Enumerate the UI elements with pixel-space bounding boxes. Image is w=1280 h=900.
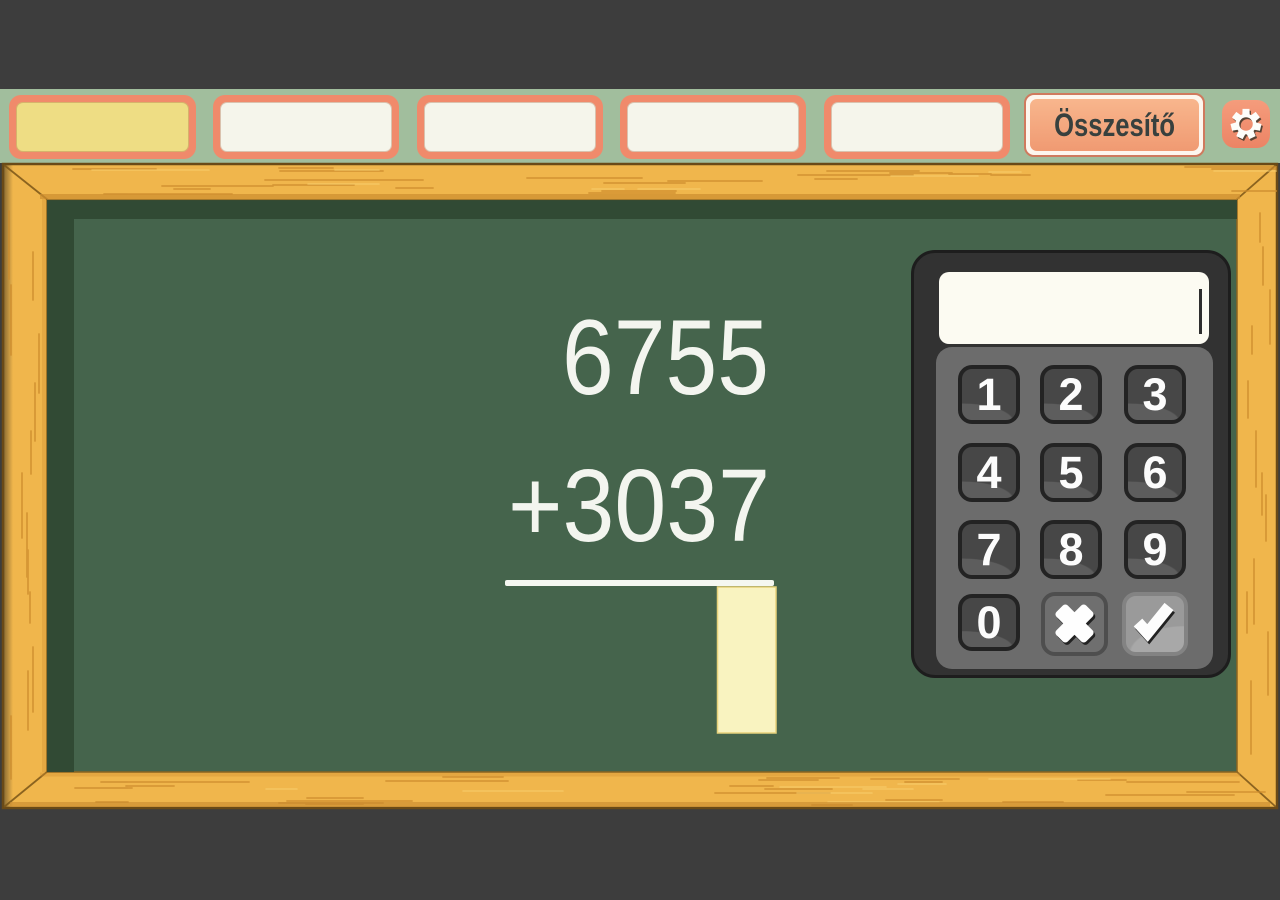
svg-text:6755: 6755	[562, 297, 769, 417]
svg-text:+3037: +3037	[508, 448, 770, 563]
